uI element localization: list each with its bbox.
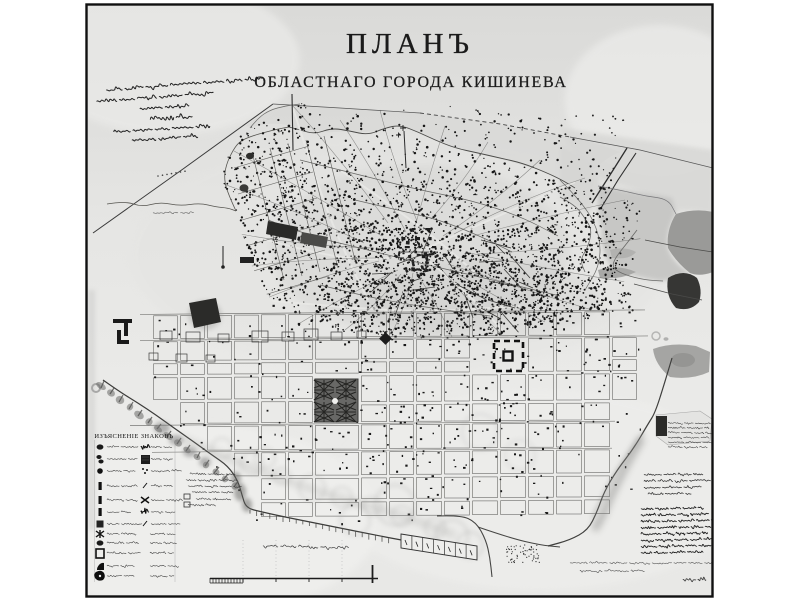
svg-text:ИЗЪЯСНЕНІЕ ЗНАКОВЪ: ИЗЪЯСНЕНІЕ ЗНАКОВЪ (94, 433, 173, 440)
svg-text:ОБЛАСТНАГО ГОРОДА КИШИНЕВА: ОБЛАСТНАГО ГОРОДА КИШИНЕВА (254, 74, 567, 91)
svg-text:ПЛАНЪ: ПЛАНЪ (346, 28, 474, 60)
